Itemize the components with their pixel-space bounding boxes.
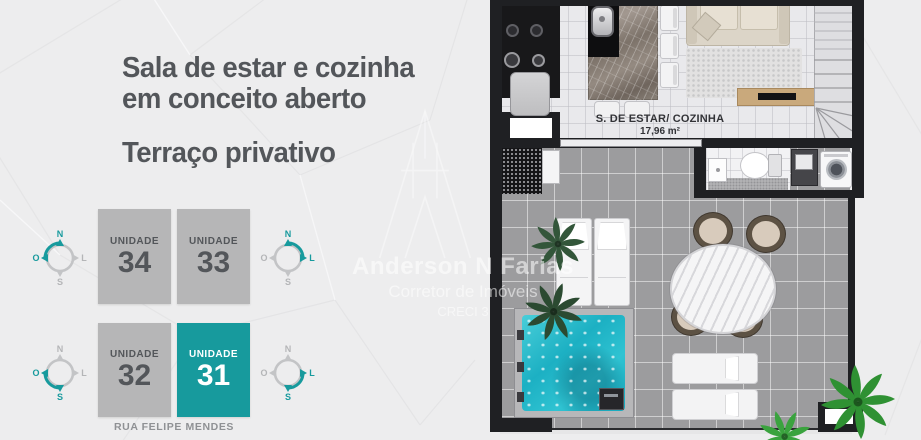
subheadline: Terraço privativo [122, 137, 335, 170]
sun-lounger [594, 218, 630, 306]
jacuzzi-control [517, 362, 524, 372]
unit-number: 31 [197, 361, 230, 391]
brand-logo-icon [365, 95, 485, 270]
svg-text:O: O [260, 368, 267, 378]
wall [490, 418, 552, 432]
svg-text:S: S [57, 392, 63, 402]
svg-text:O: O [260, 253, 267, 263]
unit-number: 34 [118, 248, 151, 278]
svg-text:N: N [57, 229, 64, 239]
street-label: RUA FELIPE MENDES [98, 421, 250, 433]
cooktop-burner-icon [504, 52, 520, 68]
svg-text:O: O [32, 368, 39, 378]
sofa-armrest [779, 1, 789, 44]
compass-icon: N S O L [32, 345, 88, 401]
svg-text:S: S [285, 277, 291, 287]
shower-tray [708, 158, 727, 182]
room-label: S. DE ESTAR/ COZINHA 17,96 m² [550, 113, 770, 137]
floor-plan: S. DE ESTAR/ COZINHA 17,96 m² [490, 0, 921, 440]
unit-block-34[interactable]: UNIDADE 34 [98, 209, 171, 304]
svg-text:S: S [285, 392, 291, 402]
svg-text:N: N [285, 229, 292, 239]
sun-lounger [672, 353, 758, 384]
cooktop-burner-icon [532, 54, 545, 67]
unit-block-31[interactable]: UNIDADE 31 [177, 323, 250, 417]
window-sill [560, 139, 702, 147]
outdoor-dining-table [670, 244, 776, 334]
svg-text:S: S [57, 277, 63, 287]
wall [694, 190, 864, 198]
svg-text:L: L [309, 368, 315, 378]
svg-text:L: L [309, 253, 315, 263]
svg-text:L: L [81, 253, 87, 263]
dining-chair [660, 62, 679, 88]
storage-niche [510, 118, 552, 139]
compass-icon: N S O L [260, 230, 316, 286]
sofa-cushion [740, 3, 778, 30]
svg-text:O: O [32, 253, 39, 263]
svg-text:N: N [285, 344, 292, 354]
headline-line1: Sala de estar e cozinha [122, 53, 414, 84]
unit-block-32[interactable]: UNIDADE 32 [98, 323, 171, 417]
wall [490, 0, 864, 6]
cooktop-burner-icon [530, 24, 543, 37]
staircase [814, 4, 854, 142]
laundry-sink [795, 154, 813, 170]
wall [852, 0, 864, 198]
unit-number: 32 [118, 361, 151, 391]
unit-label: UNIDADE [189, 236, 238, 247]
compass-icon: N S O L [260, 345, 316, 401]
compass-icon: N S O L [32, 230, 88, 286]
toilet-tank [768, 154, 782, 177]
dining-chair [660, 5, 679, 31]
unit-selector: UNIDADE 34 UNIDADE 33 UNIDADE 32 UNIDADE… [98, 209, 250, 417]
cooktop-burner-icon [506, 24, 519, 37]
room-area: 17,96 m² [550, 126, 770, 137]
outdoor-chair [747, 216, 785, 252]
svg-text:L: L [81, 368, 87, 378]
sideboard-slab [758, 93, 796, 100]
jacuzzi-control [517, 330, 524, 340]
jacuzzi-control-panel [599, 388, 624, 410]
unit-label: UNIDADE [110, 236, 159, 247]
unit-block-33[interactable]: UNIDADE 33 [177, 209, 250, 304]
svg-text:N: N [57, 344, 64, 354]
room-label-title: S. DE ESTAR/ COZINHA [550, 113, 770, 125]
dining-chair [660, 33, 679, 59]
unit-number: 33 [197, 248, 230, 278]
grill-counter-top [542, 150, 560, 184]
jacuzzi-control [517, 392, 524, 402]
refrigerator [510, 72, 550, 116]
sink-drain-icon [599, 16, 605, 22]
toilet [740, 152, 770, 179]
washing-machine-drum [826, 159, 847, 180]
